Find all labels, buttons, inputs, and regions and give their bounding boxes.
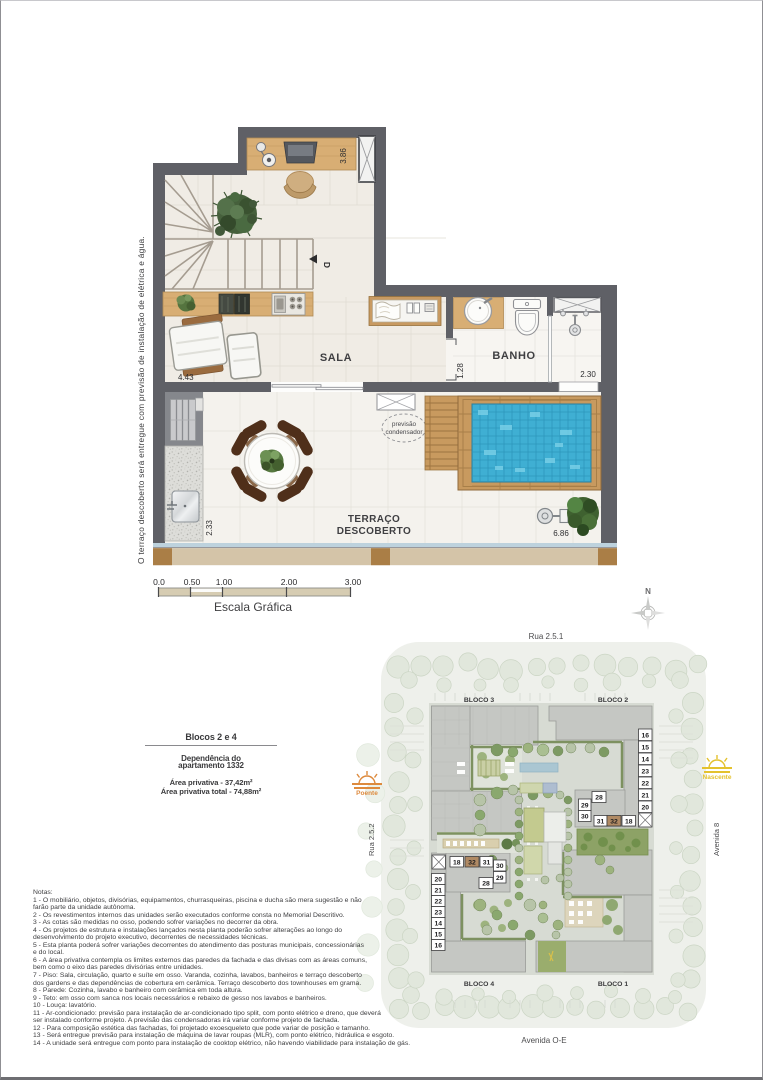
svg-text:15: 15 xyxy=(434,932,442,939)
svg-text:18: 18 xyxy=(625,818,633,825)
svg-text:31: 31 xyxy=(597,818,605,825)
svg-text:30: 30 xyxy=(496,863,504,870)
svg-text:23: 23 xyxy=(641,768,649,775)
svg-text:Poente: Poente xyxy=(356,790,378,797)
svg-text:32: 32 xyxy=(468,859,476,866)
svg-text:20: 20 xyxy=(641,804,649,811)
svg-text:30: 30 xyxy=(581,814,589,821)
svg-text:BLOCO 2: BLOCO 2 xyxy=(598,697,628,704)
svg-text:15: 15 xyxy=(641,744,649,751)
svg-text:2.30: 2.30 xyxy=(580,370,596,379)
svg-text:0.50: 0.50 xyxy=(184,577,201,587)
svg-text:0.0: 0.0 xyxy=(153,577,165,587)
svg-text:23: 23 xyxy=(434,910,442,917)
svg-text:Rua 2.5.2: Rua 2.5.2 xyxy=(367,823,376,856)
svg-text:14: 14 xyxy=(641,756,649,763)
svg-text:2.00: 2.00 xyxy=(281,577,298,587)
svg-text:16: 16 xyxy=(434,943,442,950)
svg-text:previsão: previsão xyxy=(392,421,417,428)
svg-text:DESCOBERTO: DESCOBERTO xyxy=(337,526,411,537)
svg-text:Escala Gráfica: Escala Gráfica xyxy=(214,600,292,614)
svg-text:18: 18 xyxy=(453,859,461,866)
svg-text:4.43: 4.43 xyxy=(178,373,194,382)
svg-text:TERRAÇO: TERRAÇO xyxy=(348,514,400,525)
svg-text:21: 21 xyxy=(641,792,649,799)
svg-text:3.86: 3.86 xyxy=(339,148,348,164)
svg-text:BLOCO 4: BLOCO 4 xyxy=(464,981,494,988)
svg-text:14: 14 xyxy=(434,921,442,928)
svg-text:20: 20 xyxy=(434,877,442,884)
svg-text:N: N xyxy=(645,587,651,596)
svg-text:BLOCO 1: BLOCO 1 xyxy=(598,981,628,988)
svg-text:28: 28 xyxy=(482,881,490,888)
svg-text:3.00: 3.00 xyxy=(345,577,362,587)
svg-text:Avenida O-E: Avenida O-E xyxy=(521,1036,566,1045)
svg-text:D: D xyxy=(322,262,332,268)
svg-text:Avenida 8: Avenida 8 xyxy=(712,823,721,856)
svg-text:31: 31 xyxy=(483,859,491,866)
svg-text:Nascente: Nascente xyxy=(703,774,732,781)
svg-text:22: 22 xyxy=(434,899,442,906)
svg-text:32: 32 xyxy=(610,818,618,825)
svg-text:Rua 2.5.1: Rua 2.5.1 xyxy=(529,632,564,641)
svg-text:29: 29 xyxy=(496,875,504,882)
svg-text:28: 28 xyxy=(595,795,603,802)
svg-text:condensador: condensador xyxy=(386,429,424,436)
svg-text:1.28: 1.28 xyxy=(456,363,465,379)
svg-text:22: 22 xyxy=(641,780,649,787)
svg-text:16: 16 xyxy=(641,732,649,739)
svg-text:1.00: 1.00 xyxy=(216,577,233,587)
svg-text:6.86: 6.86 xyxy=(553,529,569,538)
svg-text:SALA: SALA xyxy=(320,352,352,364)
svg-text:BLOCO 3: BLOCO 3 xyxy=(464,697,494,704)
svg-text:21: 21 xyxy=(434,888,442,895)
svg-text:BANHO: BANHO xyxy=(492,350,535,362)
svg-text:29: 29 xyxy=(581,802,589,809)
svg-text:2.33: 2.33 xyxy=(205,520,214,536)
